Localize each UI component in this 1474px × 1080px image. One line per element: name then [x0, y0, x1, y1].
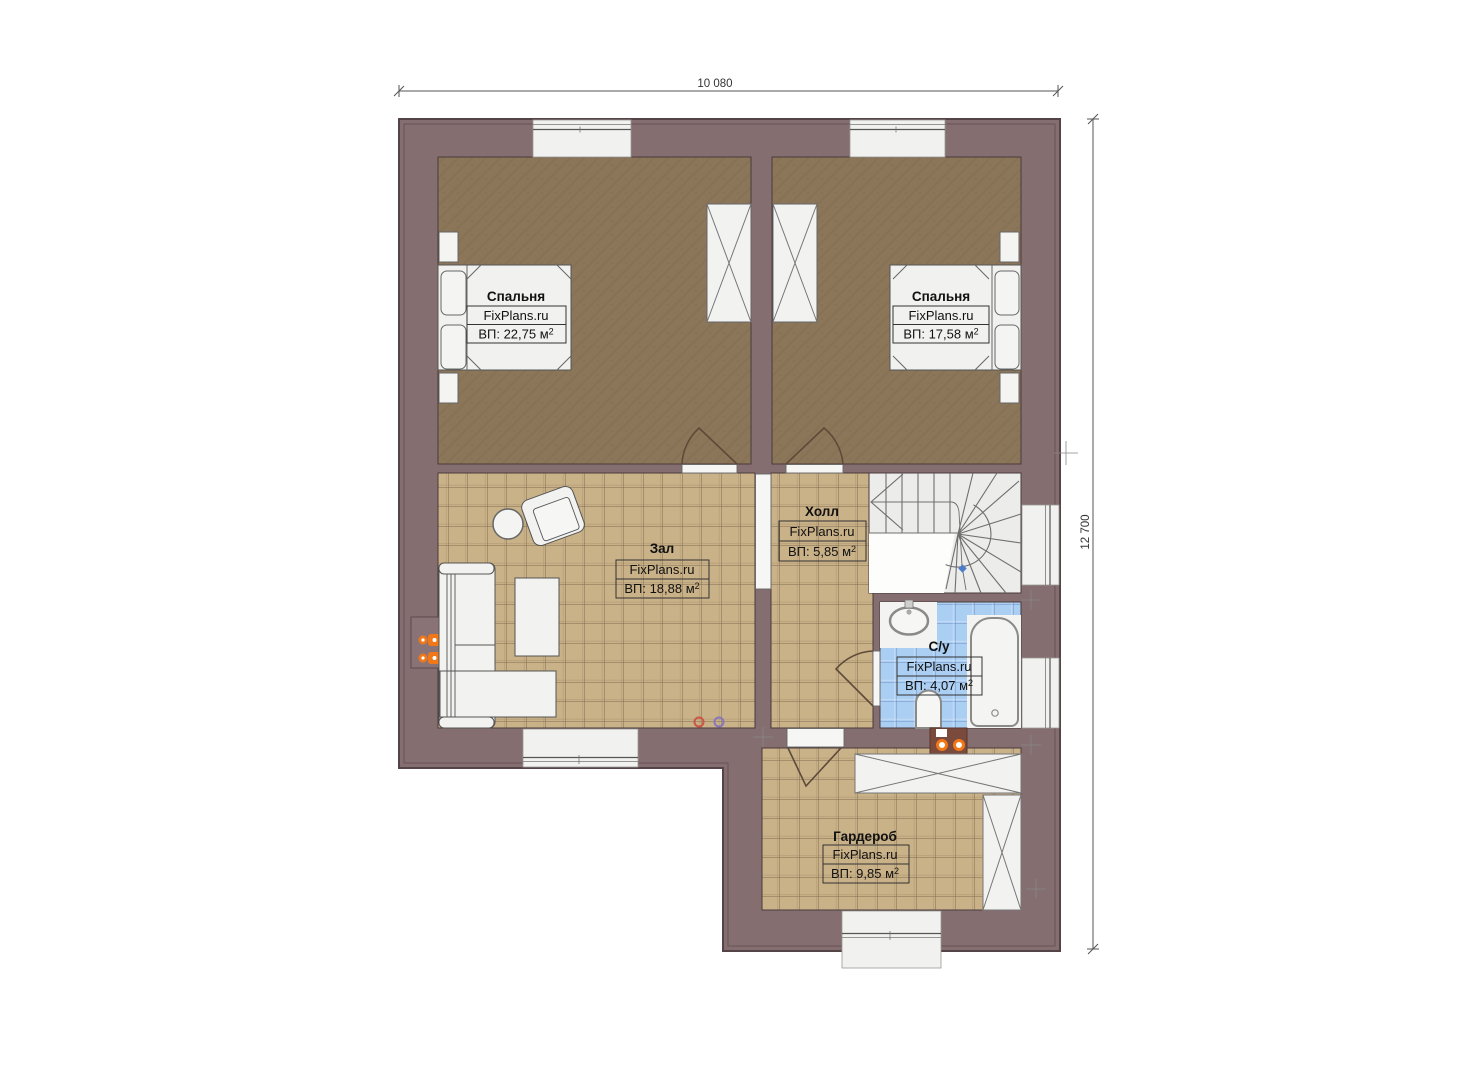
- svg-text:FixPlans.ru: FixPlans.ru: [629, 562, 694, 577]
- svg-text:FixPlans.ru: FixPlans.ru: [483, 308, 548, 323]
- svg-text:ВП: 9,85 м2: ВП: 9,85 м2: [831, 866, 899, 881]
- svg-text:10 080: 10 080: [697, 78, 732, 90]
- svg-text:ВП: 5,85 м2: ВП: 5,85 м2: [788, 544, 856, 559]
- svg-text:ВП: 22,75 м2: ВП: 22,75 м2: [478, 327, 553, 342]
- svg-text:ВП: 17,58 м2: ВП: 17,58 м2: [903, 327, 978, 342]
- svg-text:FixPlans.ru: FixPlans.ru: [908, 308, 973, 323]
- svg-text:Спальня: Спальня: [912, 289, 970, 304]
- svg-text:Зал: Зал: [650, 541, 675, 556]
- svg-text:Спальня: Спальня: [487, 289, 545, 304]
- svg-text:С/у: С/у: [928, 639, 950, 654]
- svg-text:12 700: 12 700: [1080, 514, 1092, 549]
- svg-text:ВП: 4,07 м2: ВП: 4,07 м2: [905, 678, 973, 693]
- svg-text:FixPlans.ru: FixPlans.ru: [789, 524, 854, 539]
- svg-text:Холл: Холл: [805, 504, 839, 519]
- svg-text:Гардероб: Гардероб: [833, 829, 897, 844]
- svg-text:FixPlans.ru: FixPlans.ru: [906, 659, 971, 674]
- svg-text:ВП: 18,88 м2: ВП: 18,88 м2: [624, 581, 699, 596]
- svg-text:FixPlans.ru: FixPlans.ru: [832, 847, 897, 862]
